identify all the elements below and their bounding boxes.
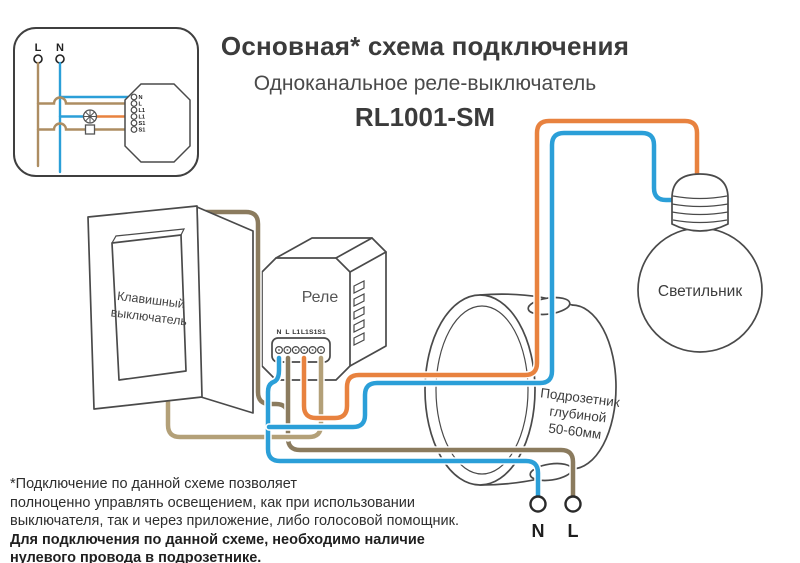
inset-lamp-icon [84,110,97,123]
svg-text:S1: S1 [309,329,318,336]
svg-text:L1: L1 [301,329,309,336]
footnote-bold-line-2: нулевого провода в подрозетнике. [10,549,480,563]
footnote-line-3: выключателя, так и через приложение, либ… [10,512,480,531]
page-title: Основная* схема подключения [130,31,720,62]
svg-text:L: L [285,329,289,336]
inset-phase-label: L [35,42,42,54]
mains-phase-terminal [566,497,581,512]
page-subtitle: Одноканальное реле-выключатель [130,72,720,96]
model-number: RL1001-SM [130,102,720,133]
mains-phase-label: L [568,521,579,541]
wall-switch: Клавишный выключатель [88,206,253,413]
inset-neutral-label: N [56,42,64,54]
mains-neutral-label: N [532,521,545,541]
footnote-bold-line-1: Для подключения по данной схеме, необход… [10,531,480,550]
svg-text:L1: L1 [292,329,300,336]
bulb-label: Светильник [658,283,742,300]
junction-box [425,294,616,485]
inset-switch-icon [86,125,95,134]
mains-terminals: N L [531,497,581,542]
svg-text:S1: S1 [317,329,326,336]
wall-switch-side [197,207,253,413]
wiring-diagram-page: Реле N L L1 L1 S1 S1 [0,0,800,563]
footnote-line-2: полноценно управлять освещением, как при… [10,494,480,513]
mains-neutral-terminal [531,497,546,512]
footnote-line-1: *Подключение по данной схеме позволяет [10,475,480,494]
relay-label: Реле [302,289,339,306]
svg-text:N: N [277,329,282,336]
junction-box-front-rim-outer [425,295,535,485]
